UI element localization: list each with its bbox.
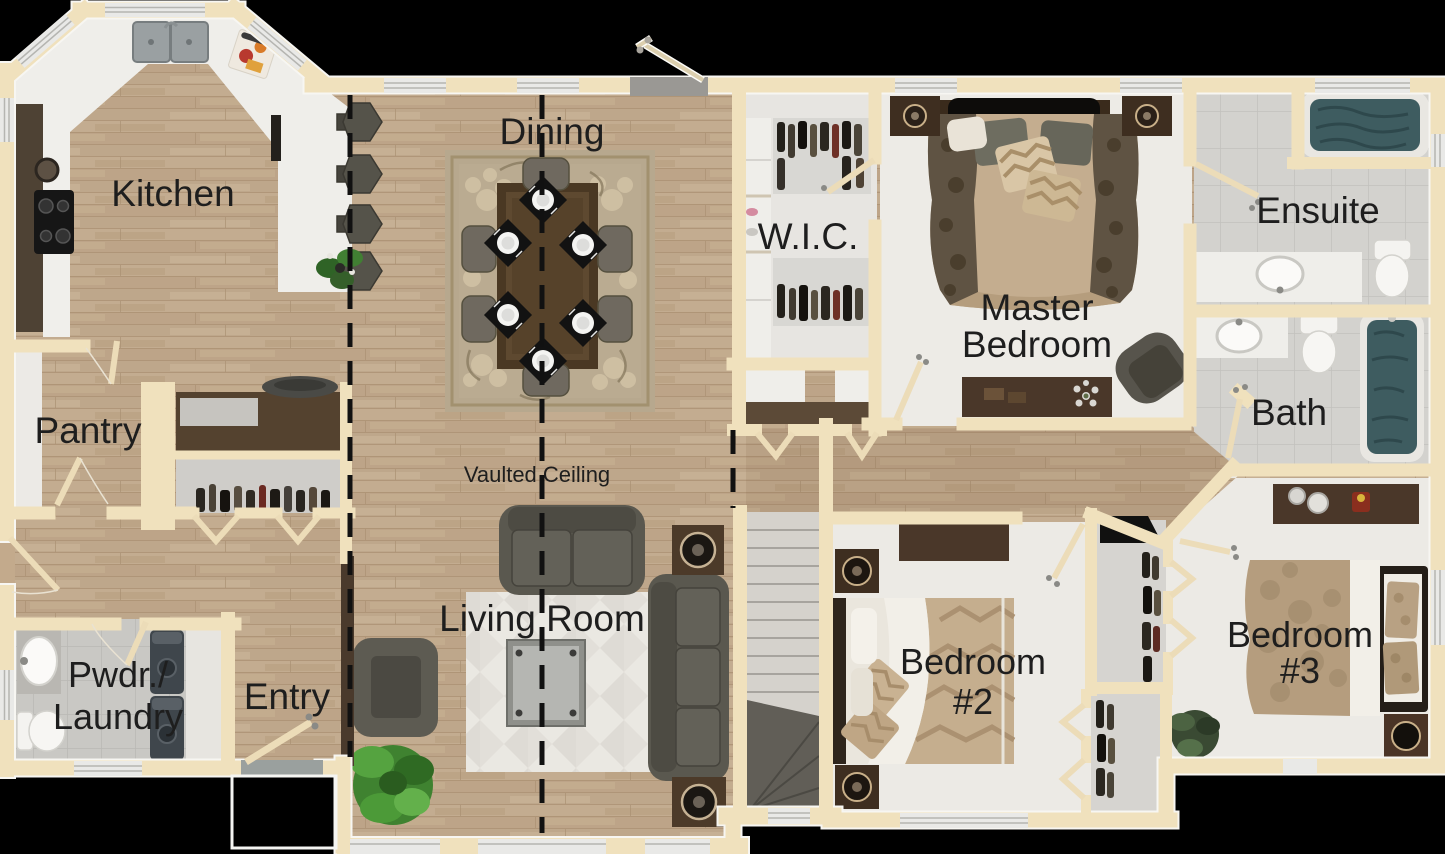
svg-text:Bedroom: Bedroom [900,641,1046,682]
svg-text:Bedroom: Bedroom [962,324,1112,365]
svg-text:#3: #3 [1280,650,1320,691]
svg-text:#2: #2 [953,681,993,722]
svg-text:W.I.C.: W.I.C. [758,216,859,257]
svg-text:Laundry: Laundry [53,696,183,737]
svg-text:Entry: Entry [244,676,331,717]
svg-text:Bedroom: Bedroom [1227,614,1373,655]
svg-text:Ensuite: Ensuite [1256,190,1379,231]
svg-text:Pwdr./: Pwdr./ [68,654,168,695]
svg-text:Bath: Bath [1251,392,1327,433]
svg-text:Pantry: Pantry [35,410,142,451]
svg-text:Dining: Dining [500,111,605,152]
svg-text:Master: Master [980,287,1093,328]
svg-text:Vaulted Ceiling: Vaulted Ceiling [464,462,610,487]
svg-text:Kitchen: Kitchen [111,173,234,214]
svg-text:Living Room: Living Room [439,598,645,639]
